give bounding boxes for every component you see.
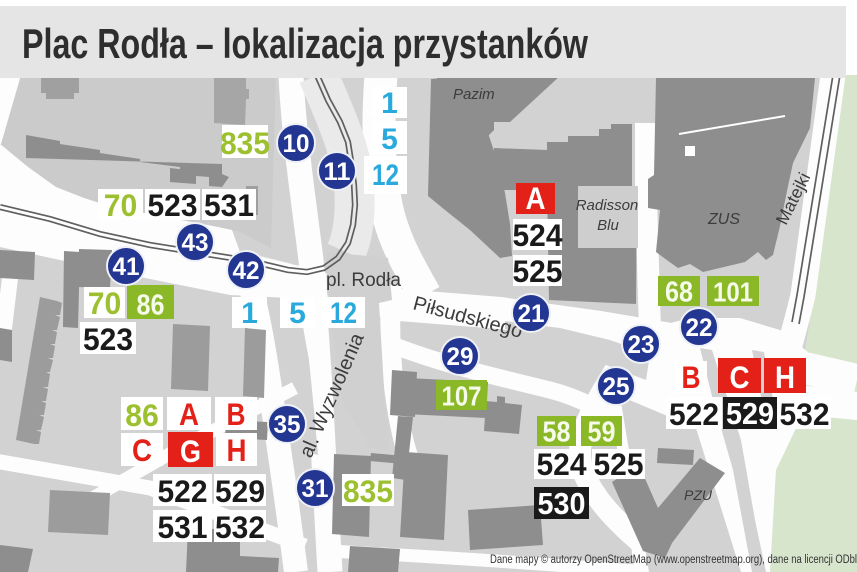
svg-text:ZUS: ZUS <box>707 211 740 228</box>
svg-text:22: 22 <box>686 314 713 342</box>
svg-text:Blu: Blu <box>597 217 619 234</box>
svg-text:68: 68 <box>665 277 693 309</box>
svg-text:522: 522 <box>158 473 208 509</box>
svg-text:H: H <box>227 432 247 468</box>
svg-text:525: 525 <box>594 446 644 482</box>
svg-text:12: 12 <box>372 159 399 192</box>
svg-text:529: 529 <box>215 473 265 509</box>
svg-text:A: A <box>526 180 546 216</box>
svg-text:11: 11 <box>324 158 351 186</box>
svg-text:31: 31 <box>302 475 329 503</box>
svg-text:531: 531 <box>158 509 208 545</box>
svg-text:A: A <box>179 396 199 432</box>
svg-text:G: G <box>180 433 201 469</box>
svg-text:C: C <box>730 359 750 395</box>
svg-text:29: 29 <box>447 343 474 371</box>
svg-text:5: 5 <box>381 123 398 156</box>
svg-text:86: 86 <box>137 290 165 322</box>
svg-text:Radisson: Radisson <box>576 197 639 214</box>
svg-text:529: 529 <box>726 396 774 431</box>
svg-text:Dane mapy © autorzy OpenStreet: Dane mapy © autorzy OpenStreetMap (www.o… <box>490 554 857 566</box>
svg-text:B: B <box>682 359 701 395</box>
svg-text:42: 42 <box>233 257 260 285</box>
svg-text:PZU: PZU <box>684 487 713 503</box>
svg-text:10: 10 <box>283 130 310 158</box>
svg-text:B: B <box>227 396 246 432</box>
svg-text:107: 107 <box>442 381 482 412</box>
svg-text:531: 531 <box>204 187 254 223</box>
svg-text:C: C <box>132 432 152 468</box>
svg-text:41: 41 <box>113 253 140 281</box>
svg-text:21: 21 <box>518 300 545 328</box>
svg-text:835: 835 <box>343 473 393 509</box>
svg-text:1: 1 <box>241 297 258 330</box>
svg-text:23: 23 <box>628 331 655 359</box>
svg-text:835: 835 <box>220 125 270 161</box>
svg-text:532: 532 <box>215 509 265 545</box>
svg-text:35: 35 <box>274 411 301 439</box>
svg-text:12: 12 <box>330 297 357 330</box>
svg-text:1: 1 <box>381 87 398 120</box>
svg-text:H: H <box>775 359 795 395</box>
svg-text:532: 532 <box>780 396 830 432</box>
svg-text:524: 524 <box>513 217 563 253</box>
svg-text:101: 101 <box>713 277 753 308</box>
svg-text:43: 43 <box>182 229 209 257</box>
svg-text:86: 86 <box>125 397 159 433</box>
svg-text:pl. Rodła: pl. Rodła <box>326 270 401 291</box>
svg-text:5: 5 <box>289 297 306 330</box>
svg-text:523: 523 <box>83 321 133 357</box>
svg-text:530: 530 <box>538 486 586 521</box>
svg-text:Plac Rodła – lokalizacja przys: Plac Rodła – lokalizacja przystanków <box>22 20 588 67</box>
svg-text:524: 524 <box>537 446 587 482</box>
svg-text:523: 523 <box>148 187 198 223</box>
svg-text:70: 70 <box>104 187 138 223</box>
svg-text:58: 58 <box>543 417 571 449</box>
svg-text:59: 59 <box>588 417 616 449</box>
svg-text:525: 525 <box>513 253 563 289</box>
svg-text:70: 70 <box>88 285 122 321</box>
svg-text:522: 522 <box>669 396 719 432</box>
svg-text:25: 25 <box>603 373 630 401</box>
svg-text:Pazim: Pazim <box>453 86 495 103</box>
